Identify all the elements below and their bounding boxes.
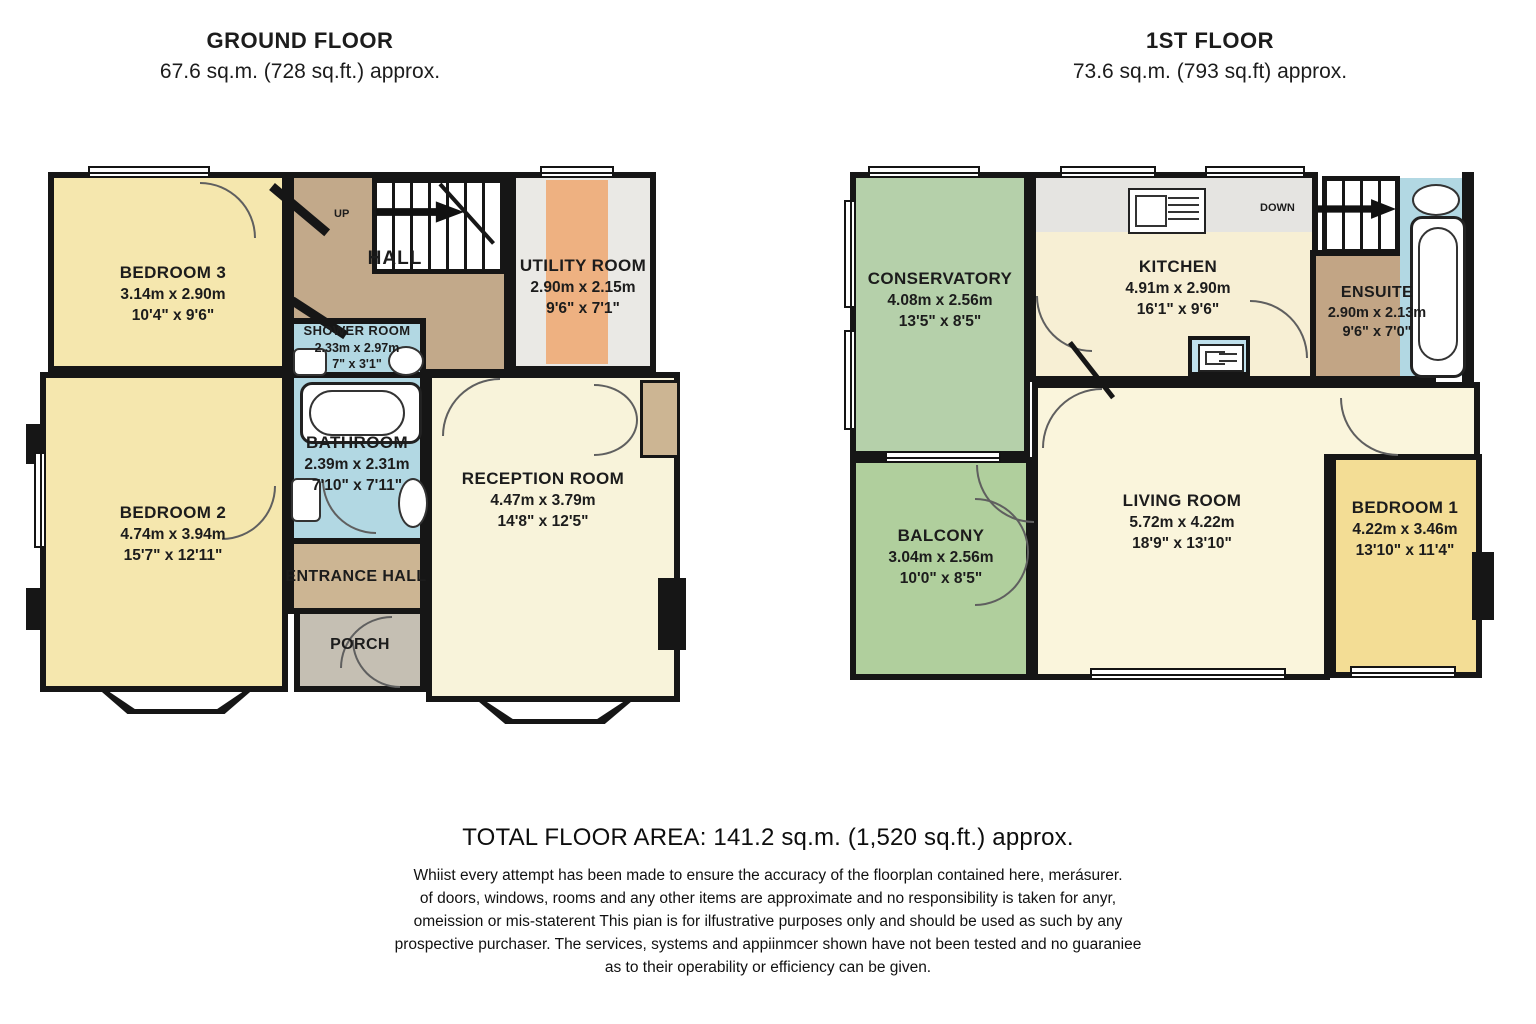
disclaimer-line-5: as to their operability or efficiency ca…: [0, 956, 1536, 979]
room-bedroom3: [48, 172, 288, 372]
window: [844, 330, 856, 430]
bathtub-icon: [1410, 216, 1466, 378]
sink-icon: [388, 346, 424, 376]
bathtub-icon: [300, 382, 422, 444]
window: [1060, 166, 1156, 178]
stairs-up: [372, 178, 506, 274]
window: [540, 166, 614, 178]
floorplan-page: GROUND FLOOR 67.6 sq.m. (728 sq.ft.) app…: [0, 0, 1536, 1024]
toilet-icon: [291, 478, 321, 522]
window: [34, 452, 46, 548]
total-floor-area: TOTAL FLOOR AREA: 141.2 sq.m. (1,520 sq.…: [0, 824, 1536, 852]
wall-tab: [1472, 552, 1494, 620]
room-bedroom2: [40, 372, 288, 692]
stairs-down: [1322, 176, 1400, 254]
window: [868, 166, 980, 178]
room-entrance-hall: [288, 538, 426, 614]
disclaimer-line-4: prospective purchaser. The services, sys…: [0, 933, 1536, 956]
island-appliance-icon: [1198, 344, 1244, 372]
reception-door-recess: [640, 380, 680, 458]
wall-tab: [26, 588, 46, 630]
up-label: UP: [334, 208, 349, 220]
sink-icon: [398, 478, 428, 528]
room-bedroom1: [1330, 454, 1482, 678]
wall-tab: [658, 578, 686, 650]
disclaimer: Whiist every attempt has been made to en…: [0, 864, 1536, 979]
window: [1350, 666, 1456, 678]
disclaimer-line-2: of doors, windows, rooms and any other i…: [0, 887, 1536, 910]
window: [1205, 166, 1305, 178]
window: [1090, 668, 1286, 680]
bay-window-reception: [472, 696, 638, 724]
window: [844, 200, 856, 308]
utility-orange-stripe: [546, 180, 608, 364]
window: [885, 451, 1001, 463]
sink-icon: [1412, 184, 1460, 216]
down-label: DOWN: [1260, 202, 1295, 214]
window: [88, 166, 210, 178]
toilet-icon: [293, 348, 327, 376]
room-conservatory: [850, 172, 1030, 457]
disclaimer-line-1: Whiist every attempt has been made to en…: [0, 864, 1536, 887]
bay-window-bedroom2: [95, 686, 257, 714]
disclaimer-line-3: omeission or mis-staterent This pian is …: [0, 910, 1536, 933]
kitchen-sink-icon: [1128, 188, 1206, 234]
